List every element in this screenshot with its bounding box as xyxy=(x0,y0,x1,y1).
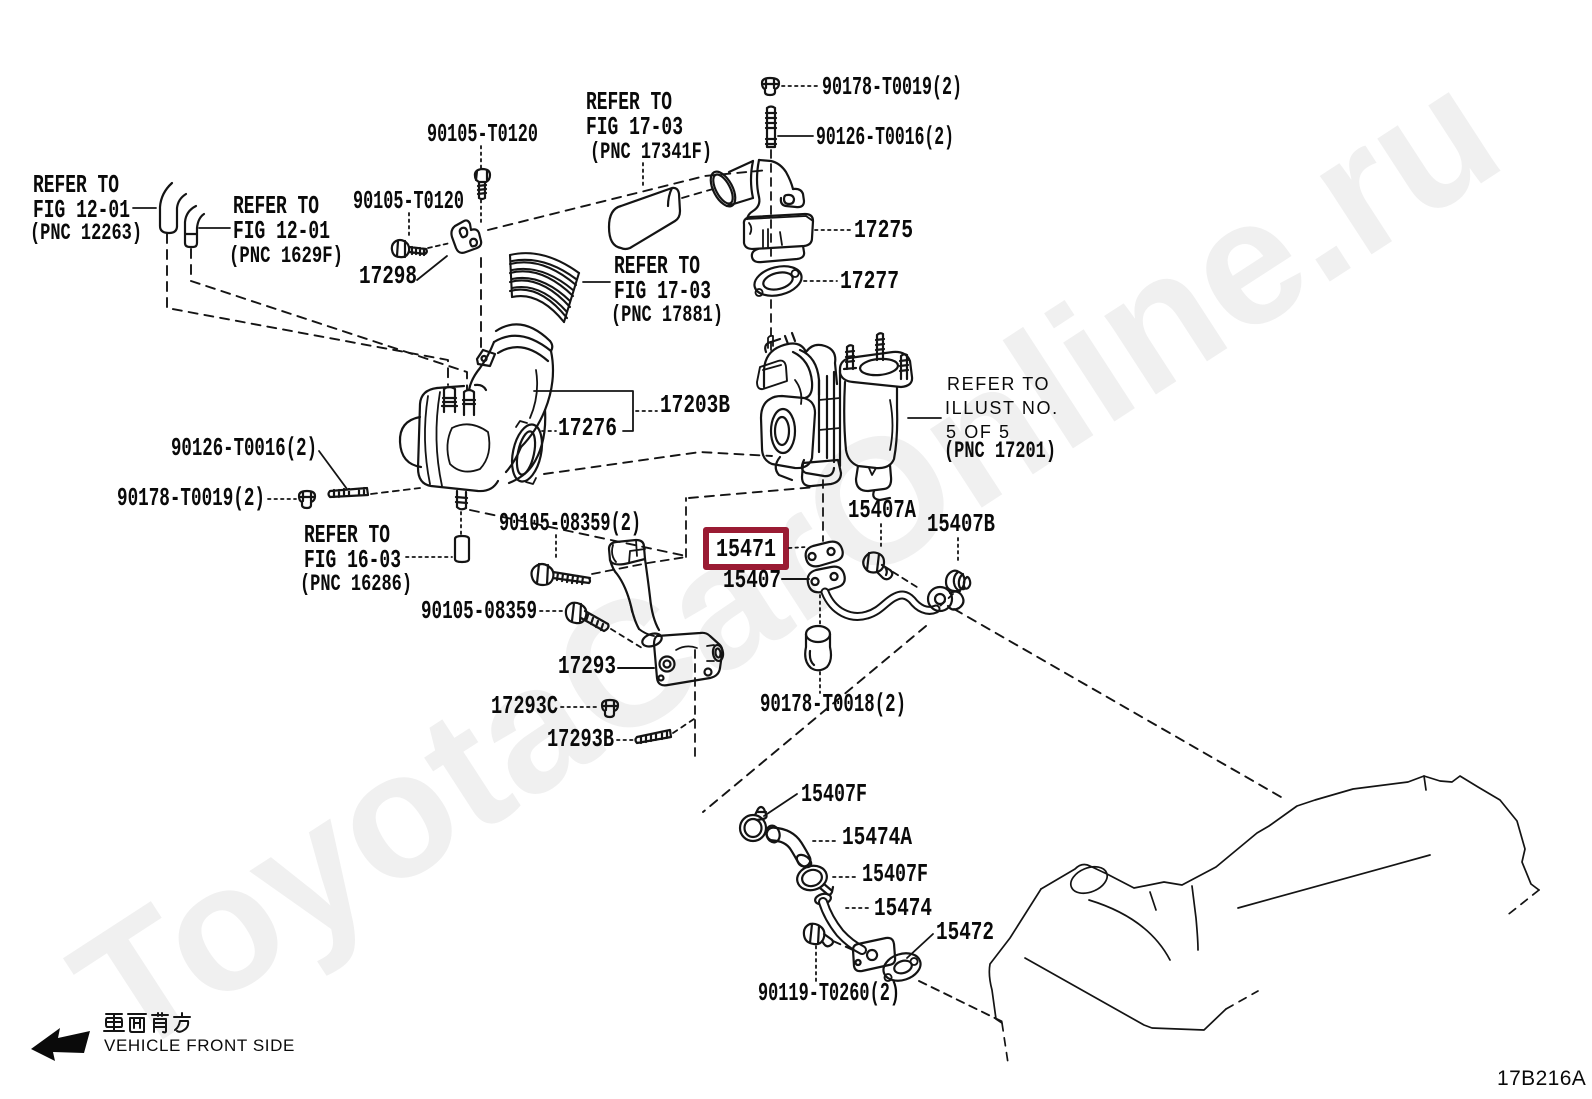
svg-text:(PNC 1629F): (PNC 1629F) xyxy=(229,243,343,269)
svg-text:17298: 17298 xyxy=(359,261,417,291)
svg-text:90126-T0016(2): 90126-T0016(2) xyxy=(816,122,954,152)
svg-text:17293C: 17293C xyxy=(491,691,558,721)
svg-text:17277: 17277 xyxy=(840,266,899,296)
svg-text:17B216A: 17B216A xyxy=(1497,1067,1586,1090)
svg-text:15474: 15474 xyxy=(874,893,932,923)
svg-text:90105-T0120: 90105-T0120 xyxy=(427,119,538,149)
svg-text:ILLUST NO.: ILLUST NO. xyxy=(945,398,1059,418)
svg-text:15407A: 15407A xyxy=(848,495,916,525)
svg-text:90126-T0016(2): 90126-T0016(2) xyxy=(171,433,317,463)
svg-text:(PNC 17341F): (PNC 17341F) xyxy=(590,139,712,165)
svg-text:15407F: 15407F xyxy=(801,779,867,809)
svg-text:90178-T0019(2): 90178-T0019(2) xyxy=(117,483,265,513)
svg-text:15407F: 15407F xyxy=(862,859,928,889)
svg-text:90119-T0260(2): 90119-T0260(2) xyxy=(758,978,900,1008)
svg-text:15472: 15472 xyxy=(936,917,994,947)
svg-text:90178-T0018(2): 90178-T0018(2) xyxy=(760,689,906,719)
svg-text:VEHICLE FRONT SIDE: VEHICLE FRONT SIDE xyxy=(104,1036,295,1055)
svg-text:90105-T0120: 90105-T0120 xyxy=(353,186,464,216)
svg-text:90178-T0019(2): 90178-T0019(2) xyxy=(822,72,962,102)
svg-text:17203B: 17203B xyxy=(660,390,730,420)
svg-text:FIG 12-01: FIG 12-01 xyxy=(233,216,330,246)
svg-text:90105-08359(2): 90105-08359(2) xyxy=(499,508,641,538)
svg-text:FIG 17-03: FIG 17-03 xyxy=(586,112,683,142)
svg-text:17293B: 17293B xyxy=(547,724,614,754)
svg-text:15407B: 15407B xyxy=(927,509,995,539)
svg-text:15474A: 15474A xyxy=(842,822,912,852)
svg-text:17276: 17276 xyxy=(558,413,617,443)
svg-text:(PNC 17881): (PNC 17881) xyxy=(611,302,723,328)
svg-text:(PNC 16286): (PNC 16286) xyxy=(300,571,412,597)
svg-text:15407: 15407 xyxy=(723,565,781,595)
svg-text:15471: 15471 xyxy=(716,534,776,564)
svg-text:90105-08359: 90105-08359 xyxy=(421,596,537,626)
svg-text:17293: 17293 xyxy=(558,651,616,681)
svg-text:(PNC 17201): (PNC 17201) xyxy=(944,438,1056,464)
svg-text:17275: 17275 xyxy=(854,215,913,245)
svg-text:(PNC 12263): (PNC 12263) xyxy=(30,220,142,246)
svg-text:REFER TO: REFER TO xyxy=(947,374,1050,394)
